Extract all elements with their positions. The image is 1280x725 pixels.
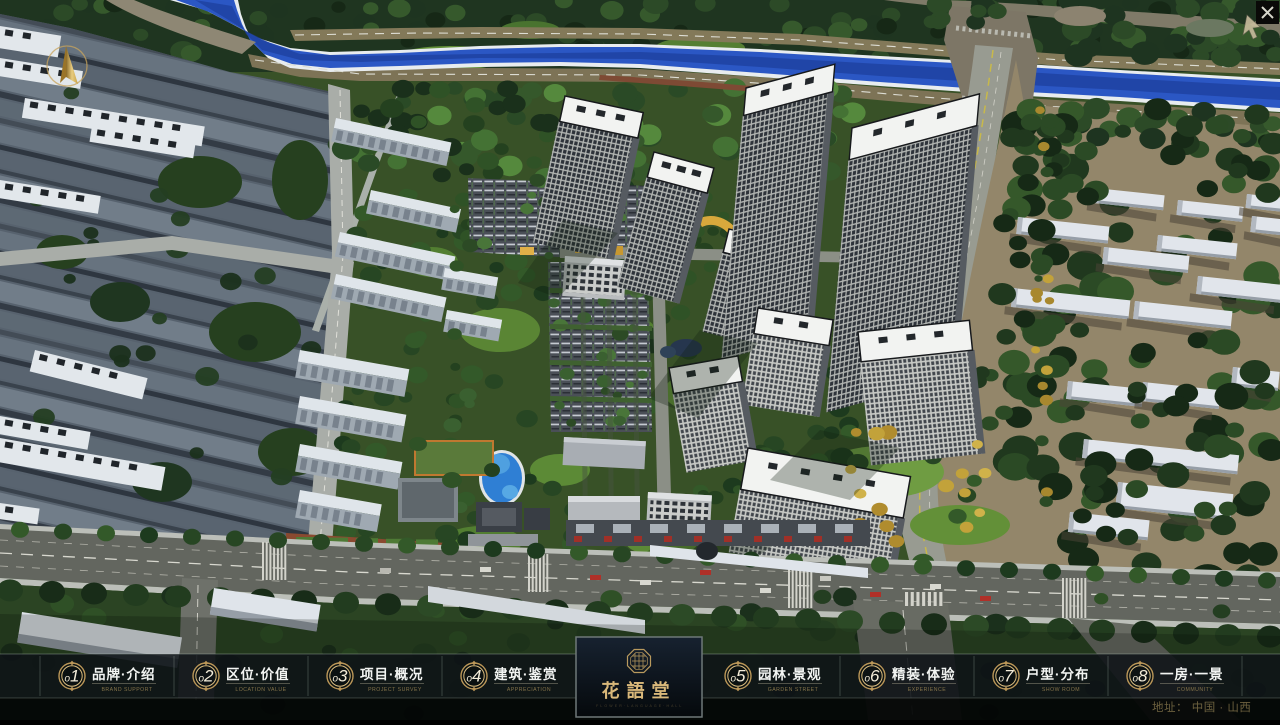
svg-text:BRAND SUPPORT: BRAND SUPPORT — [101, 687, 152, 693]
svg-text:SHOW ROOM: SHOW ROOM — [1042, 687, 1080, 693]
svg-text:园林·景观: 园林·景观 — [758, 666, 822, 682]
svg-text:EXPERIENCE: EXPERIENCE — [908, 687, 946, 693]
svg-text:PROJECT SURVEY: PROJECT SURVEY — [368, 687, 422, 693]
svg-text:GARDEN STREET: GARDEN STREET — [768, 687, 819, 693]
svg-text:COMMUNITY: COMMUNITY — [1177, 687, 1214, 693]
svg-text:精装·体验: 精装·体验 — [892, 666, 956, 682]
svg-text:建筑·鉴赏: 建筑·鉴赏 — [493, 666, 558, 682]
svg-text:APPRECIATION: APPRECIATION — [507, 687, 551, 693]
svg-text:品牌·介绍: 品牌·介绍 — [92, 666, 156, 682]
svg-text:花語堂: 花語堂 — [602, 680, 677, 701]
svg-text:F L O W E R · L A N G U A G E: F L O W E R · L A N G U A G E · H A L L — [596, 704, 682, 708]
svg-text:地址： 中国 · 山西: 地址： 中国 · 山西 — [1152, 700, 1251, 714]
svg-text:LOCATION VALUE: LOCATION VALUE — [235, 687, 286, 693]
svg-text:区位·价值: 区位·价值 — [226, 666, 290, 682]
svg-text:户型·分布: 户型·分布 — [1026, 666, 1090, 682]
svg-text:项目·概况: 项目·概况 — [360, 666, 424, 682]
svg-text:一房·一景: 一房·一景 — [1160, 666, 1224, 682]
